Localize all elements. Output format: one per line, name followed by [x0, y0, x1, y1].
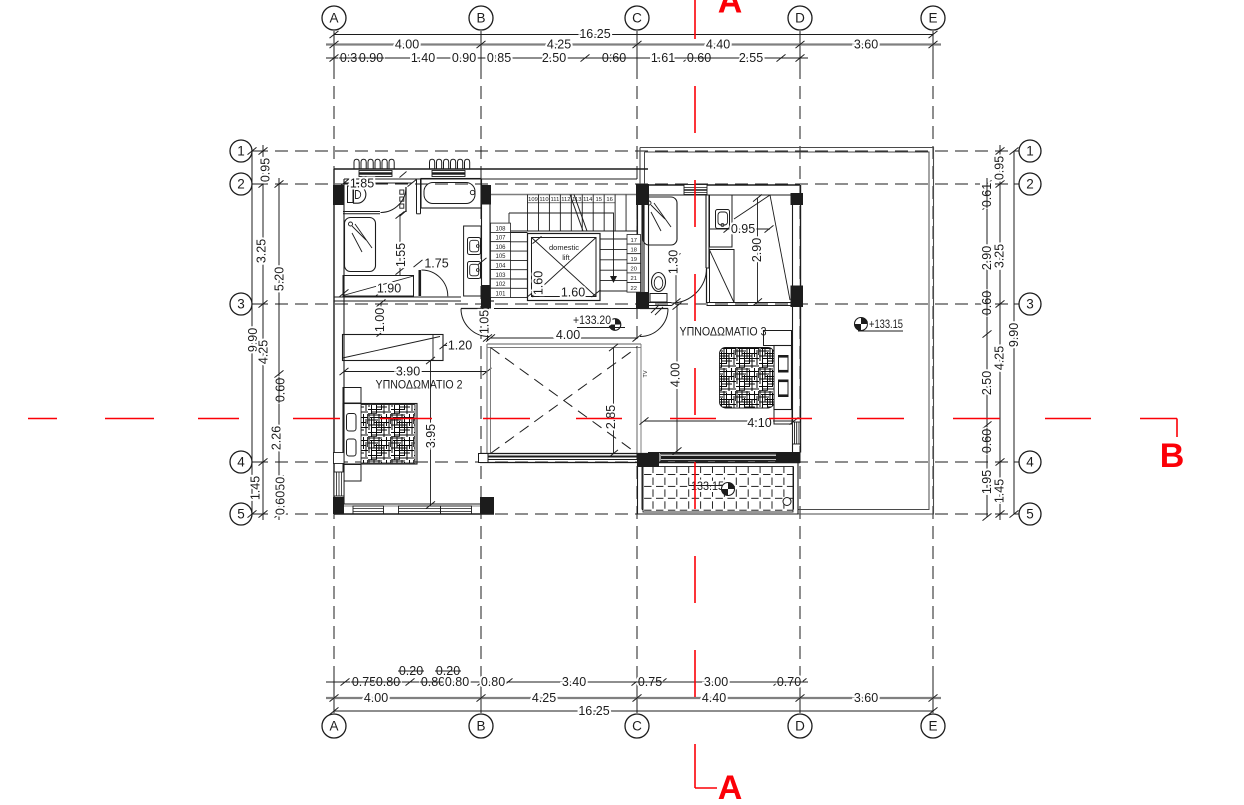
svg-text:16.25: 16.25 — [579, 27, 610, 41]
svg-text:4.25: 4.25 — [993, 346, 1007, 370]
svg-text:0.95: 0.95 — [731, 222, 755, 236]
svg-text:D: D — [795, 11, 805, 26]
svg-text:4: 4 — [1026, 455, 1034, 470]
svg-text:0.95: 0.95 — [993, 156, 1007, 180]
svg-text:3.25: 3.25 — [993, 244, 1007, 268]
svg-text:C: C — [632, 11, 642, 26]
svg-text:20: 20 — [630, 267, 636, 273]
svg-text:4.10: 4.10 — [747, 416, 771, 430]
svg-text:1.20: 1.20 — [448, 339, 472, 353]
svg-text:3.60: 3.60 — [854, 691, 878, 705]
svg-text:4.40: 4.40 — [706, 38, 730, 52]
svg-text:101: 101 — [495, 291, 506, 297]
svg-text:0.60: 0.60 — [274, 491, 288, 515]
svg-text:1.60: 1.60 — [532, 271, 546, 295]
svg-text:0.95: 0.95 — [259, 158, 273, 182]
svg-text:9.90: 9.90 — [1007, 323, 1021, 347]
svg-text:1: 1 — [1026, 144, 1034, 159]
svg-text:4.40: 4.40 — [702, 691, 726, 705]
svg-text:2.90: 2.90 — [980, 246, 994, 270]
svg-text:4.00: 4.00 — [395, 38, 419, 52]
svg-text:1.45: 1.45 — [993, 479, 1007, 503]
svg-text:2.50: 2.50 — [980, 371, 994, 395]
svg-text:5.20: 5.20 — [273, 267, 287, 291]
svg-text:17: 17 — [630, 238, 636, 244]
svg-text:1.75: 1.75 — [424, 257, 448, 271]
svg-text:114: 114 — [583, 197, 593, 203]
svg-text:+133.20: +133.20 — [573, 313, 611, 327]
svg-text:1.30: 1.30 — [667, 250, 681, 274]
svg-text:A: A — [718, 769, 743, 800]
svg-text:102: 102 — [495, 282, 506, 288]
svg-text:0.90: 0.90 — [452, 51, 476, 65]
svg-text:104: 104 — [495, 264, 506, 270]
svg-text:103: 103 — [495, 273, 506, 279]
svg-text:2.50: 2.50 — [542, 51, 566, 65]
svg-text:B: B — [476, 719, 485, 734]
svg-text:ΥΠΝΟΔΩΜΑΤΙΟ 3: ΥΠΝΟΔΩΜΑΤΙΟ 3 — [680, 325, 767, 339]
svg-text:0.85: 0.85 — [487, 51, 511, 65]
svg-text:107: 107 — [495, 236, 506, 242]
svg-text:3: 3 — [1026, 297, 1034, 312]
svg-text:105: 105 — [495, 254, 506, 260]
svg-text:111: 111 — [550, 197, 559, 203]
svg-text:B: B — [1160, 437, 1185, 475]
svg-text:2.85: 2.85 — [604, 405, 618, 429]
svg-text:2: 2 — [1026, 177, 1034, 192]
svg-text:5: 5 — [1026, 507, 1034, 522]
svg-text:18: 18 — [630, 247, 636, 253]
svg-text:16.25: 16.25 — [578, 704, 609, 718]
svg-text:A: A — [718, 0, 743, 21]
svg-text:110: 110 — [539, 197, 548, 203]
svg-text:1.40: 1.40 — [411, 51, 435, 65]
svg-text:4.00: 4.00 — [669, 363, 683, 387]
svg-text:B: B — [476, 11, 485, 26]
svg-text:1.85: 1.85 — [350, 177, 374, 191]
svg-text:2.90: 2.90 — [750, 238, 764, 262]
svg-text:0.60: 0.60 — [274, 378, 288, 402]
svg-text:A: A — [329, 719, 338, 734]
svg-text:4.25: 4.25 — [547, 38, 571, 52]
svg-text:5: 5 — [237, 507, 245, 522]
svg-text:lift: lift — [562, 253, 570, 262]
svg-text:1.55: 1.55 — [394, 243, 408, 267]
svg-text:109: 109 — [528, 197, 538, 203]
svg-text:4.00: 4.00 — [364, 691, 388, 705]
svg-text:21: 21 — [630, 276, 636, 282]
svg-text:2.26: 2.26 — [270, 426, 284, 450]
svg-text:3.60: 3.60 — [854, 38, 878, 52]
svg-text:15: 15 — [595, 197, 601, 203]
svg-text:4.25: 4.25 — [257, 340, 271, 364]
svg-text:1.00: 1.00 — [373, 308, 387, 332]
svg-text:C: C — [632, 719, 642, 734]
svg-text:3.90: 3.90 — [396, 365, 420, 379]
svg-text:3: 3 — [237, 297, 245, 312]
svg-text:3.00: 3.00 — [704, 675, 728, 689]
svg-text:domestic: domestic — [549, 243, 579, 252]
svg-text:112: 112 — [561, 197, 570, 203]
svg-text:106: 106 — [495, 245, 506, 251]
svg-text:1.61: 1.61 — [651, 51, 675, 65]
svg-text:D: D — [795, 719, 805, 734]
svg-text:E: E — [928, 719, 937, 734]
svg-text:1.60: 1.60 — [561, 286, 585, 300]
svg-text:1.05: 1.05 — [478, 310, 492, 334]
svg-text:2.55: 2.55 — [739, 51, 763, 65]
svg-text:4: 4 — [237, 455, 245, 470]
svg-text:1.95: 1.95 — [980, 470, 994, 494]
svg-text:ΥΠΝΟΔΩΜΑΤΙΟ 2: ΥΠΝΟΔΩΜΑΤΙΟ 2 — [376, 378, 463, 392]
svg-text:19: 19 — [630, 257, 636, 263]
svg-text:+133.15: +133.15 — [869, 317, 903, 331]
svg-text:4.25: 4.25 — [532, 691, 556, 705]
svg-text:1.45: 1.45 — [249, 476, 263, 500]
svg-text:4.00: 4.00 — [556, 328, 580, 342]
svg-text:108: 108 — [495, 226, 506, 232]
svg-text:3.40: 3.40 — [562, 675, 586, 689]
svg-text:E: E — [928, 11, 937, 26]
svg-text:16: 16 — [606, 197, 612, 203]
svg-text:3.25: 3.25 — [255, 239, 269, 263]
svg-text:1: 1 — [237, 144, 245, 159]
svg-text:22: 22 — [630, 286, 636, 292]
svg-text:0.80: 0.80 — [481, 675, 505, 689]
svg-text:3.95: 3.95 — [424, 424, 438, 448]
svg-text:A: A — [329, 11, 338, 26]
svg-text:1.90: 1.90 — [377, 282, 401, 296]
svg-text:TV: TV — [643, 370, 649, 377]
svg-text:2: 2 — [237, 177, 245, 192]
